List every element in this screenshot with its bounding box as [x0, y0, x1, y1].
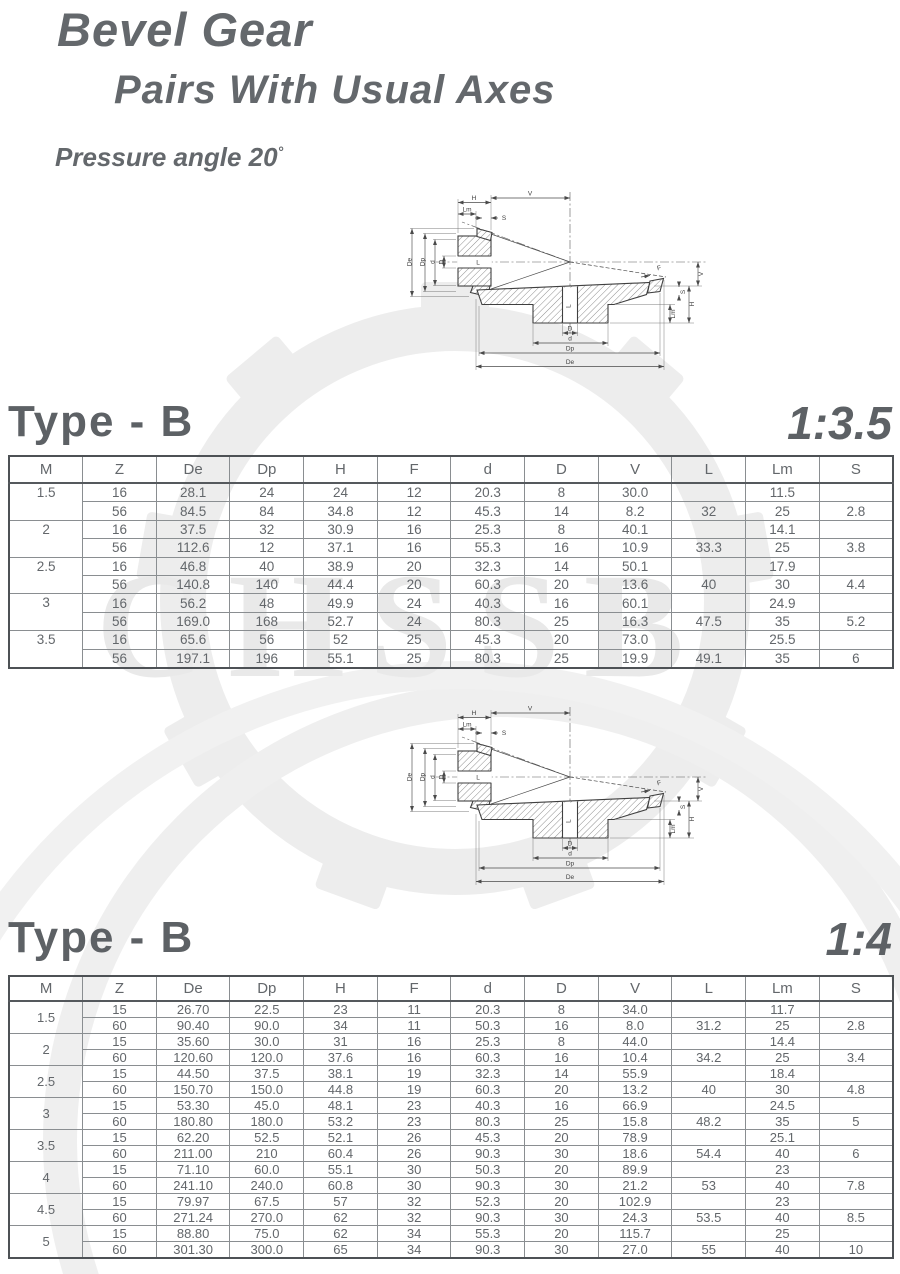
table-cell: 25 [746, 1226, 820, 1242]
table-cell: 31 [304, 1034, 378, 1050]
table-cell: 16 [83, 631, 157, 649]
table-cell: 60.8 [304, 1178, 378, 1194]
table-cell: 15 [83, 1194, 157, 1210]
table-cell [672, 1066, 746, 1082]
table-cell: 150.0 [230, 1082, 304, 1098]
table-cell: 34.0 [598, 1001, 672, 1018]
table-cell: 84 [230, 502, 304, 520]
table-cell: 15 [83, 1098, 157, 1114]
module-cell: 3 [9, 594, 83, 631]
table-cell: 54.4 [672, 1146, 746, 1162]
table-row: 60271.24270.0623290.33024.353.5408.5 [9, 1210, 893, 1226]
pinion-section: L [457, 229, 492, 297]
bevel-gear-diagram-2: L L V H Lm S De Dp d D [398, 701, 728, 913]
table-cell: 196 [230, 649, 304, 668]
table-cell: 30 [377, 1162, 451, 1178]
table-cell: 24.5 [746, 1098, 820, 1114]
dim-label-H-right: H [689, 301, 696, 306]
table-cell: 56.2 [156, 594, 230, 612]
table-cell: 60.3 [451, 1082, 525, 1098]
table-cell: 16 [377, 1034, 451, 1050]
dim-label-V-top: V [528, 191, 533, 198]
table-cell: 14.1 [746, 520, 820, 538]
table-cell: 56 [83, 575, 157, 593]
table-cell: 11 [377, 1018, 451, 1034]
table-cell: 10.4 [598, 1050, 672, 1066]
table-cell: 89.9 [598, 1162, 672, 1178]
table-cell: 300.0 [230, 1242, 304, 1259]
column-header: Z [83, 456, 157, 483]
table-cell: 24 [304, 483, 378, 502]
table-cell: 20 [525, 1194, 599, 1210]
table-cell: 37.1 [304, 539, 378, 557]
column-header: De [156, 456, 230, 483]
dim-label-V-top: V [528, 706, 533, 713]
table-body: 1.51628.124241220.3830.011.55684.58434.8… [9, 483, 893, 668]
module-cell: 5 [9, 1226, 83, 1259]
table-cell [819, 1194, 893, 1210]
table-cell: 20 [377, 575, 451, 593]
table-row: 21637.53230.91625.3840.114.1 [9, 520, 893, 538]
table-cell: 8 [525, 1001, 599, 1018]
table-cell: 55.9 [598, 1066, 672, 1082]
module-cell: 4.5 [9, 1194, 83, 1226]
table-cell: 35 [746, 1114, 820, 1130]
table-cell: 112.6 [156, 539, 230, 557]
table-body: 1.51526.7022.5231120.3834.011.76090.4090… [9, 1001, 893, 1258]
table-cell [672, 1001, 746, 1018]
dim-label-De-bottom: De [566, 359, 575, 366]
table-cell: 55.1 [304, 649, 378, 668]
table-cell: 16 [525, 1050, 599, 1066]
dim-label-S-right: S [680, 804, 687, 809]
table-cell: 20.3 [451, 1001, 525, 1018]
table-cell: 78.9 [598, 1130, 672, 1146]
table-cell: 15 [83, 1130, 157, 1146]
dim-label-F-right: F [656, 265, 661, 273]
column-header: F [377, 456, 451, 483]
table-cell: 5.2 [819, 612, 893, 630]
table-row: 51588.8075.0623455.320115.725 [9, 1226, 893, 1242]
table-cell [672, 594, 746, 612]
dim-label-Dp-left: Dp [420, 257, 427, 266]
table-cell: 14 [525, 502, 599, 520]
table-row: 56197.119655.12580.32519.949.1356 [9, 649, 893, 668]
table-cell: 211.00 [156, 1146, 230, 1162]
table-cell: 115.7 [598, 1226, 672, 1242]
table-cell: 73.0 [598, 631, 672, 649]
table-cell: 45.3 [451, 502, 525, 520]
table-cell: 67.5 [230, 1194, 304, 1210]
table-cell: 50.1 [598, 557, 672, 575]
dim-label-Dp-bottom: Dp [566, 346, 575, 353]
table-row: 3.51665.656522545.32073.025.5 [9, 631, 893, 649]
table-cell: 38.9 [304, 557, 378, 575]
dim-label-Lm-top: Lm [462, 207, 471, 214]
table-cell: 60.0 [230, 1162, 304, 1178]
table-cell: 56 [83, 649, 157, 668]
table-cell: 66.9 [598, 1098, 672, 1114]
table-cell: 30 [746, 575, 820, 593]
table-cell: 37.5 [156, 520, 230, 538]
table-cell [672, 557, 746, 575]
table-cell: 11.7 [746, 1001, 820, 1018]
table-cell: 75.0 [230, 1226, 304, 1242]
table-cell: 24.9 [746, 594, 820, 612]
table-cell: 25 [525, 1114, 599, 1130]
column-header: S [819, 456, 893, 483]
table-cell: 26 [377, 1130, 451, 1146]
dim-label-Dp-bottom: Dp [566, 861, 575, 868]
table-cell: 16 [83, 483, 157, 502]
table-cell: 15 [83, 1001, 157, 1018]
dim-label-De-left: De [407, 257, 414, 266]
table-cell: 32 [672, 502, 746, 520]
table-cell: 23 [746, 1194, 820, 1210]
table-cell: 25 [746, 502, 820, 520]
table-cell: 169.0 [156, 612, 230, 630]
table-cell: 32 [377, 1194, 451, 1210]
dim-label-De-left: De [407, 772, 414, 781]
column-header: H [304, 976, 378, 1001]
table-cell: 52.7 [304, 612, 378, 630]
table-row: 56140.814044.42060.32013.640304.4 [9, 575, 893, 593]
table-cell: 90.0 [230, 1018, 304, 1034]
table-row: 3.51562.2052.552.12645.32078.925.1 [9, 1130, 893, 1146]
table-cell: 11.5 [746, 483, 820, 502]
table-cell: 53 [672, 1178, 746, 1194]
page-title-line2: Pairs With Usual Axes [114, 68, 556, 113]
table-cell: 56 [83, 612, 157, 630]
dim-label-F-right: F [656, 780, 661, 788]
dim-label-d-left: d [430, 775, 437, 779]
dim-label-S-top: S [502, 215, 507, 222]
table-cell: 60 [83, 1114, 157, 1130]
table-cell: 52.5 [230, 1130, 304, 1146]
table-cell: 52.1 [304, 1130, 378, 1146]
table-cell: 55.3 [451, 539, 525, 557]
table-cell: 12 [377, 502, 451, 520]
column-header: d [451, 976, 525, 1001]
table-cell: 16 [377, 539, 451, 557]
table-cell: 23 [304, 1001, 378, 1018]
dim-label-Lm-right: Lm [670, 824, 677, 833]
table-row: 31553.3045.048.12340.31666.924.5 [9, 1098, 893, 1114]
table-cell: 60 [83, 1242, 157, 1259]
table-cell: 32 [230, 520, 304, 538]
table-row: 2.51646.84038.92032.31450.117.9 [9, 557, 893, 575]
dim-label-d-left: d [430, 260, 437, 264]
table-row: 1.51526.7022.5231120.3834.011.7 [9, 1001, 893, 1018]
module-cell: 3.5 [9, 631, 83, 668]
table-cell: 38.1 [304, 1066, 378, 1082]
table-cell: 65.6 [156, 631, 230, 649]
table-header: MZDeDpHFdDVLLmS [9, 456, 893, 483]
table-cell: 20 [525, 631, 599, 649]
dim-label-L-pinion: L [476, 260, 480, 267]
table-cell: 25 [746, 1018, 820, 1034]
table-cell: 90.3 [451, 1146, 525, 1162]
table-cell: 30 [525, 1210, 599, 1226]
table-cell [672, 483, 746, 502]
table-cell: 60.3 [451, 575, 525, 593]
table-cell: 8 [525, 1034, 599, 1050]
table-cell: 40.3 [451, 594, 525, 612]
table-cell: 53.2 [304, 1114, 378, 1130]
column-header: Lm [746, 456, 820, 483]
table-cell: 20 [525, 1130, 599, 1146]
module-cell: 3 [9, 1098, 83, 1130]
table-cell: 60.1 [598, 594, 672, 612]
table-cell: 52 [304, 631, 378, 649]
table-cell: 34 [304, 1018, 378, 1034]
table-cell [672, 631, 746, 649]
table-cell: 35 [746, 612, 820, 630]
table-cell: 20 [525, 1162, 599, 1178]
table-cell: 46.8 [156, 557, 230, 575]
table-cell: 16 [525, 1018, 599, 1034]
table-cell: 23 [377, 1098, 451, 1114]
table-cell: 30 [377, 1178, 451, 1194]
table-cell [819, 520, 893, 538]
table-cell: 15 [83, 1226, 157, 1242]
table-cell: 13.2 [598, 1082, 672, 1098]
table-cell: 18.6 [598, 1146, 672, 1162]
module-cell: 2 [9, 1034, 83, 1066]
table-cell: 241.10 [156, 1178, 230, 1194]
table-cell: 90.40 [156, 1018, 230, 1034]
table-cell [819, 1098, 893, 1114]
column-header: M [9, 456, 83, 483]
table-row: 31656.24849.92440.31660.124.9 [9, 594, 893, 612]
table-cell: 90.3 [451, 1242, 525, 1259]
table-cell: 25 [525, 649, 599, 668]
table-cell [672, 1098, 746, 1114]
table-cell: 48 [230, 594, 304, 612]
pressure-angle-text: Pressure angle 20 [55, 142, 278, 172]
table-cell: 270.0 [230, 1210, 304, 1226]
table-cell: 60 [83, 1178, 157, 1194]
table-cell: 49.9 [304, 594, 378, 612]
table-row: 6090.4090.0341150.3168.031.2252.8 [9, 1018, 893, 1034]
column-header: H [304, 456, 378, 483]
table-cell: 30.0 [230, 1034, 304, 1050]
module-cell: 3.5 [9, 1130, 83, 1162]
table-row: 60301.30300.0653490.33027.0554010 [9, 1242, 893, 1259]
module-cell: 2.5 [9, 557, 83, 594]
table-cell: 25.3 [451, 520, 525, 538]
column-header: Lm [746, 976, 820, 1001]
table-cell: 25 [377, 631, 451, 649]
column-header: V [598, 976, 672, 1001]
module-cell: 1.5 [9, 1001, 83, 1034]
table-cell: 40 [672, 1082, 746, 1098]
table-cell: 6 [819, 649, 893, 668]
table-cell: 197.1 [156, 649, 230, 668]
table-cell: 80.3 [451, 1114, 525, 1130]
column-header: S [819, 976, 893, 1001]
table-cell: 40 [746, 1146, 820, 1162]
table-cell: 16 [83, 557, 157, 575]
table-row: 1.51628.124241220.3830.011.5 [9, 483, 893, 502]
table-row: 60150.70150.044.81960.32013.240304.8 [9, 1082, 893, 1098]
table-cell: 16 [525, 539, 599, 557]
table-cell: 32.3 [451, 557, 525, 575]
table-cell: 30 [746, 1082, 820, 1098]
table-cell: 102.9 [598, 1194, 672, 1210]
type-heading-1: Type - B [8, 397, 194, 447]
table-cell: 210 [230, 1146, 304, 1162]
table-cell [819, 1130, 893, 1146]
table-cell: 56 [83, 502, 157, 520]
dim-label-S-right: S [680, 289, 687, 294]
table-cell: 40 [230, 557, 304, 575]
table-cell: 19 [377, 1066, 451, 1082]
table-cell: 21.2 [598, 1178, 672, 1194]
table-cell: 40 [672, 575, 746, 593]
table-cell: 25.1 [746, 1130, 820, 1146]
table-cell: 55.1 [304, 1162, 378, 1178]
table-cell: 30 [525, 1146, 599, 1162]
table-cell: 19.9 [598, 649, 672, 668]
column-header: V [598, 456, 672, 483]
column-header: Z [83, 976, 157, 1001]
table-cell: 34.2 [672, 1050, 746, 1066]
table-cell: 180.0 [230, 1114, 304, 1130]
table-cell: 3.4 [819, 1050, 893, 1066]
table-cell: 50.3 [451, 1018, 525, 1034]
table-cell: 57 [304, 1194, 378, 1210]
table-cell [672, 1162, 746, 1178]
table-row: 60241.10240.060.83090.33021.253407.8 [9, 1178, 893, 1194]
table-row: 4.51579.9767.5573252.320102.923 [9, 1194, 893, 1210]
table-row: 41571.1060.055.13050.32089.923 [9, 1162, 893, 1178]
table-cell: 88.80 [156, 1226, 230, 1242]
table-cell: 20 [525, 1082, 599, 1098]
table-cell: 4.4 [819, 575, 893, 593]
table-cell: 45.3 [451, 631, 525, 649]
table-cell: 40 [746, 1242, 820, 1259]
table-cell: 23 [377, 1114, 451, 1130]
table-cell: 180.80 [156, 1114, 230, 1130]
table-cell: 60.4 [304, 1146, 378, 1162]
column-header: M [9, 976, 83, 1001]
table-cell: 44.0 [598, 1034, 672, 1050]
table-cell: 31.2 [672, 1018, 746, 1034]
table-cell: 25.5 [746, 631, 820, 649]
pinion-section: L [457, 744, 492, 812]
table-cell: 32 [377, 1210, 451, 1226]
table-cell: 45.3 [451, 1130, 525, 1146]
table-cell: 7.8 [819, 1178, 893, 1194]
dim-label-D-bottom: D [568, 841, 573, 848]
table-row: 2.51544.5037.538.11932.31455.918.4 [9, 1066, 893, 1082]
table-cell: 15 [83, 1034, 157, 1050]
table-cell: 2.8 [819, 1018, 893, 1034]
table-cell: 60 [83, 1082, 157, 1098]
table-cell: 19 [377, 1082, 451, 1098]
table-cell: 10.9 [598, 539, 672, 557]
table-cell: 26 [377, 1146, 451, 1162]
table-cell: 6 [819, 1146, 893, 1162]
pressure-angle-label: Pressure angle 20° [55, 142, 283, 173]
column-header: Dp [230, 976, 304, 1001]
header-row: MZDeDpHFdDVLLmS [9, 976, 893, 1001]
table-cell: 271.24 [156, 1210, 230, 1226]
table-cell [819, 594, 893, 612]
ratio-label-2: 1:4 [826, 912, 892, 966]
table-cell: 44.4 [304, 575, 378, 593]
dimension-table-1-3-5: MZDeDpHFdDVLLmS 1.51628.124241220.3830.0… [8, 455, 894, 669]
table-row: 60211.0021060.42690.33018.654.4406 [9, 1146, 893, 1162]
dim-label-d-bottom: d [568, 851, 572, 858]
table-cell: 22.5 [230, 1001, 304, 1018]
dim-label-Lm-right: Lm [670, 309, 677, 318]
table-cell [672, 1194, 746, 1210]
column-header: D [525, 976, 599, 1001]
table-cell: 120.60 [156, 1050, 230, 1066]
table-cell [819, 557, 893, 575]
table-cell: 140 [230, 575, 304, 593]
dim-label-L-gear: L [566, 819, 573, 823]
table-cell: 25 [746, 539, 820, 557]
column-header: Dp [230, 456, 304, 483]
table-cell: 40.1 [598, 520, 672, 538]
table-cell: 45.0 [230, 1098, 304, 1114]
table-cell: 34.8 [304, 502, 378, 520]
table-cell: 15 [83, 1066, 157, 1082]
table-cell: 11 [377, 1001, 451, 1018]
table-cell: 90.3 [451, 1178, 525, 1194]
table-cell: 20 [525, 1226, 599, 1242]
table-cell: 2.8 [819, 502, 893, 520]
module-cell: 2.5 [9, 1066, 83, 1098]
table-cell: 30 [525, 1242, 599, 1259]
table-cell: 40 [746, 1210, 820, 1226]
table-cell: 8 [525, 520, 599, 538]
table-cell: 71.10 [156, 1162, 230, 1178]
table-cell: 65 [304, 1242, 378, 1259]
table-cell: 4.8 [819, 1082, 893, 1098]
table-cell: 14 [525, 1066, 599, 1082]
table-cell [819, 631, 893, 649]
table-cell: 15 [83, 1162, 157, 1178]
column-header: D [525, 456, 599, 483]
table-cell: 5 [819, 1114, 893, 1130]
table-cell: 30.0 [598, 483, 672, 502]
table-row: 5684.58434.81245.3148.232252.8 [9, 502, 893, 520]
dim-label-L-pinion: L [476, 775, 480, 782]
table-cell: 16 [525, 1098, 599, 1114]
table-cell: 53.5 [672, 1210, 746, 1226]
table-cell: 14 [525, 557, 599, 575]
table-row: 56169.016852.72480.32516.347.5355.2 [9, 612, 893, 630]
table-cell [819, 1226, 893, 1242]
table-cell: 24 [230, 483, 304, 502]
table-cell: 12 [230, 539, 304, 557]
table-cell: 12 [377, 483, 451, 502]
column-header: L [672, 976, 746, 1001]
table-cell: 37.6 [304, 1050, 378, 1066]
table-cell: 23 [746, 1162, 820, 1178]
table-cell: 168 [230, 612, 304, 630]
table-cell: 240.0 [230, 1178, 304, 1194]
table-cell: 16.3 [598, 612, 672, 630]
table-cell: 24 [377, 594, 451, 612]
table-cell: 52.3 [451, 1194, 525, 1210]
dim-label-De-bottom: De [566, 874, 575, 881]
table-cell: 25 [525, 612, 599, 630]
